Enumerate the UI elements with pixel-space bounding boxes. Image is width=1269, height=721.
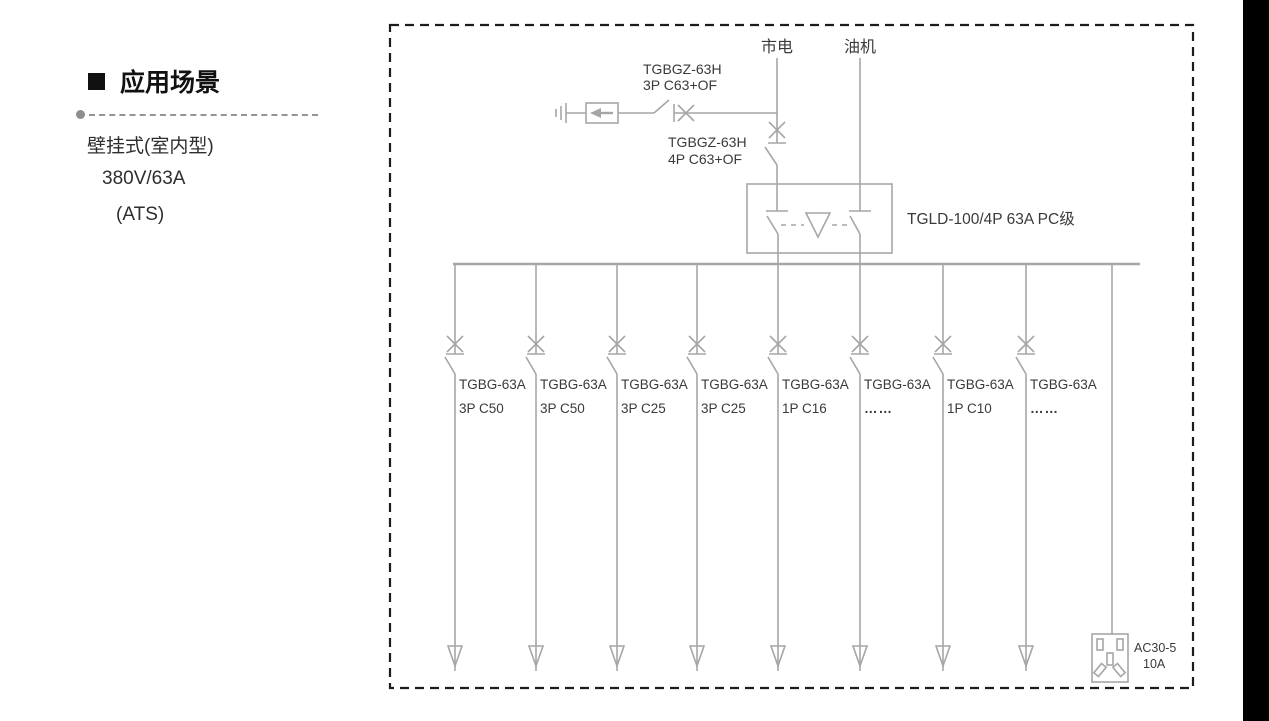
breaker-icon <box>765 147 777 165</box>
branch-spec: 3P C50 <box>459 401 504 416</box>
spd-branch <box>556 100 777 123</box>
ats-transfer-switch <box>747 184 892 264</box>
breaker-icon <box>933 357 943 374</box>
application-scenario-page: 应用场景 壁挂式(室内型) 380V/63A (ATS) 市电 油机 <box>0 0 1269 721</box>
spd-breaker-model: TGBGZ-63H <box>643 61 722 77</box>
branch-spec: 3P C25 <box>621 401 666 416</box>
main-breaker-model: TGBGZ-63H <box>668 134 747 150</box>
branch-model: TGBG-63A <box>621 377 688 392</box>
branch-model: TGBG-63A <box>459 377 526 392</box>
branch-circuit: TGBG-63A 3P C50 <box>445 264 526 671</box>
breaker-icon <box>526 357 536 374</box>
socket-rating: 10A <box>1143 657 1166 671</box>
branch-model: TGBG-63A <box>864 377 931 392</box>
branch-circuit: TGBG-63A 3P C50 <box>526 264 607 671</box>
breaker-icon <box>768 357 778 374</box>
branch-circuit: TGBG-63A 3P C25 <box>607 264 688 671</box>
spd-breaker-spec: 3P C63+OF <box>643 77 717 93</box>
breaker-icon <box>607 357 617 374</box>
branch-circuit: TGBG-63A 1P C16 <box>768 264 849 671</box>
socket-model: AC30-5 <box>1134 641 1176 655</box>
branch-circuit: TGBG-63A 1P C10 <box>933 264 1014 671</box>
branch-spec: 1P C10 <box>947 401 992 416</box>
branch-model: TGBG-63A <box>701 377 768 392</box>
breaker-icon <box>445 357 455 374</box>
breaker-icon <box>850 357 860 374</box>
branch-model: TGBG-63A <box>1030 377 1097 392</box>
branch-model: TGBG-63A <box>782 377 849 392</box>
branch-model: TGBG-63A <box>947 377 1014 392</box>
mains-incoming-line <box>765 58 786 211</box>
branch-spec: …… <box>1030 401 1059 416</box>
branch-spec: 1P C16 <box>782 401 827 416</box>
source-generator-label: 油机 <box>844 38 876 56</box>
branch-spec: 3P C25 <box>701 401 746 416</box>
single-line-diagram: 市电 油机 <box>0 0 1269 721</box>
branch-spec: 3P C50 <box>540 401 585 416</box>
diagram-frame <box>390 25 1193 688</box>
ats-label: TGLD-100/4P 63A PC级 <box>907 210 1075 228</box>
interlock-triangle-icon <box>806 213 830 237</box>
branch-model: TGBG-63A <box>540 377 607 392</box>
breaker-icon <box>687 357 697 374</box>
spd-arrow-icon <box>590 108 601 118</box>
source-mains-label: 市电 <box>761 38 793 56</box>
breaker-icon <box>654 100 669 113</box>
branch-circuit: TGBG-63A …… <box>850 264 931 671</box>
breaker-icon <box>1016 357 1026 374</box>
branch-spec: …… <box>864 401 893 416</box>
main-breaker-spec: 4P C63+OF <box>668 151 742 167</box>
branch-circuit: TGBG-63A …… <box>1016 264 1097 671</box>
branch-circuit: TGBG-63A 3P C25 <box>687 264 768 671</box>
socket-branch: AC30-5 10A <box>1092 264 1176 682</box>
